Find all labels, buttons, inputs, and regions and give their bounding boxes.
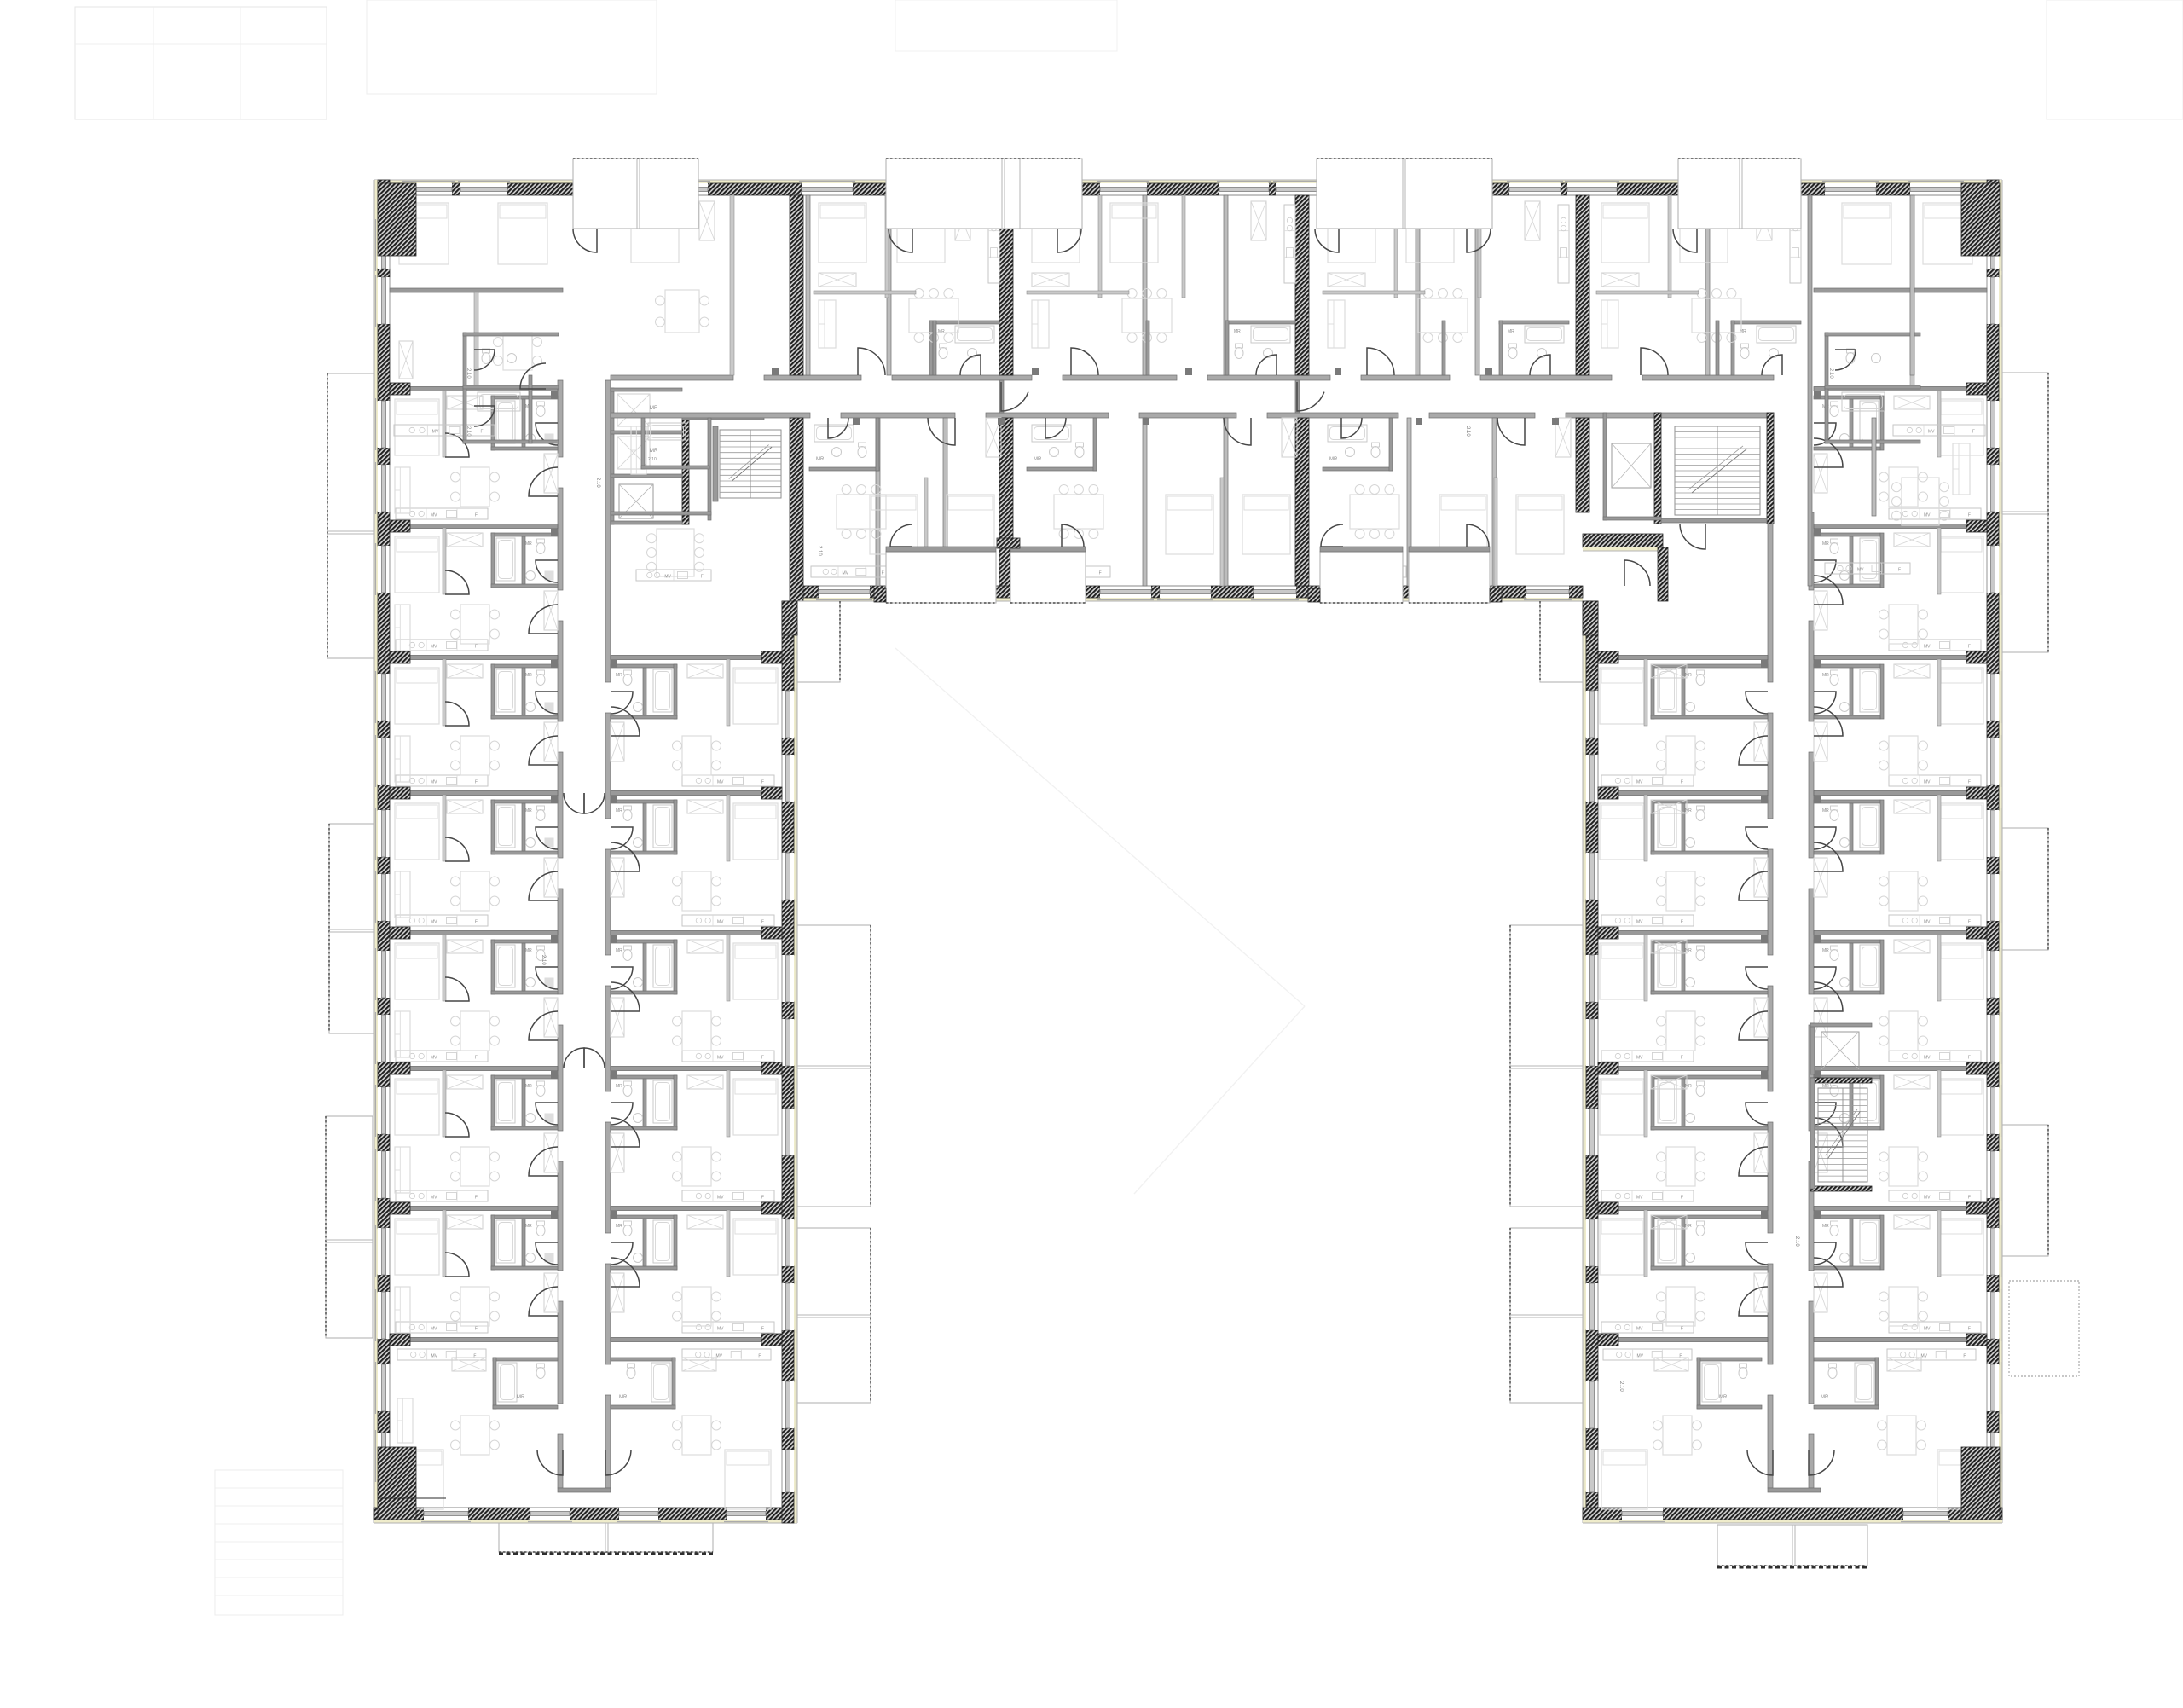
svg-text:MV: MV	[431, 920, 437, 925]
svg-text:MV: MV	[1928, 430, 1935, 435]
svg-text:F: F	[475, 1056, 478, 1061]
svg-text:MR: MR	[616, 948, 622, 953]
svg-text:MR: MR	[1822, 808, 1829, 813]
svg-text:F: F	[1968, 513, 1971, 518]
svg-text:MR: MR	[1508, 329, 1514, 334]
svg-text:F: F	[1968, 780, 1971, 785]
svg-text:MV: MV	[1636, 920, 1643, 925]
svg-text:MR: MR	[1719, 1395, 1728, 1400]
svg-text:MV: MV	[717, 1196, 724, 1201]
svg-text:MV: MV	[1924, 920, 1931, 925]
svg-text:F: F	[761, 1056, 764, 1061]
svg-text:F: F	[1681, 1327, 1683, 1332]
svg-text:MR: MR	[1329, 457, 1338, 462]
svg-text:F: F	[761, 1196, 764, 1201]
svg-text:MV: MV	[717, 1327, 724, 1332]
svg-text:MV: MV	[843, 571, 849, 576]
svg-text:MR: MR	[1234, 329, 1241, 334]
svg-text:F: F	[1968, 920, 1971, 925]
svg-text:MV: MV	[431, 1196, 437, 1201]
svg-text:MV: MV	[431, 645, 437, 650]
svg-text:F: F	[475, 780, 478, 785]
svg-text:MV: MV	[1924, 780, 1931, 785]
svg-text:MR: MR	[938, 329, 945, 334]
svg-text:MV: MV	[1921, 1354, 1928, 1359]
svg-text:MV: MV	[431, 1056, 437, 1061]
svg-text:MV: MV	[1636, 1056, 1643, 1061]
svg-text:F: F	[1681, 1196, 1683, 1201]
svg-text:F: F	[1972, 430, 1975, 435]
svg-text:MR: MR	[525, 1224, 532, 1229]
svg-text:MR: MR	[619, 1395, 628, 1400]
svg-text:MR: MR	[525, 808, 532, 813]
svg-text:F: F	[882, 571, 884, 576]
svg-text:2.10: 2.10	[1465, 426, 1470, 437]
svg-text:MR: MR	[525, 1084, 532, 1089]
svg-text:F: F	[1681, 780, 1683, 785]
svg-text:MV: MV	[1924, 645, 1931, 650]
svg-text:MV: MV	[431, 780, 437, 785]
svg-text:MR: MR	[1685, 948, 1692, 953]
svg-text:F: F	[1963, 1354, 1966, 1359]
svg-text:MV: MV	[1924, 513, 1931, 518]
svg-text:MV: MV	[664, 575, 671, 580]
svg-text:2.10: 2.10	[1794, 1236, 1799, 1247]
svg-text:MV: MV	[717, 780, 724, 785]
svg-text:F: F	[761, 1327, 764, 1332]
svg-text:F: F	[1681, 1056, 1683, 1061]
svg-text:MR: MR	[1685, 673, 1692, 678]
svg-text:MV: MV	[1857, 568, 1864, 573]
svg-text:MV: MV	[717, 920, 724, 925]
svg-text:MR: MR	[525, 541, 532, 547]
svg-text:2.10: 2.10	[541, 955, 546, 965]
svg-text:F: F	[473, 1354, 476, 1359]
svg-text:F: F	[475, 1327, 478, 1332]
svg-text:MR: MR	[1685, 808, 1692, 813]
svg-text:2.10: 2.10	[466, 368, 471, 379]
svg-text:MV: MV	[716, 1354, 723, 1359]
svg-text:MV: MV	[1636, 780, 1643, 785]
svg-text:F: F	[475, 513, 478, 518]
svg-text:MV: MV	[1636, 1327, 1643, 1332]
svg-text:MR: MR	[525, 673, 532, 678]
svg-text:MR: MR	[616, 673, 622, 678]
svg-text:2.10: 2.10	[817, 546, 822, 556]
svg-text:MR: MR	[616, 1084, 622, 1089]
svg-text:2.10: 2.10	[648, 457, 657, 462]
svg-text:MR: MR	[650, 449, 658, 454]
svg-text:2.10: 2.10	[466, 426, 471, 437]
svg-text:MV: MV	[431, 513, 437, 518]
svg-text:MR: MR	[1822, 541, 1829, 547]
svg-text:F: F	[475, 920, 478, 925]
svg-text:F: F	[481, 430, 484, 435]
svg-text:MR: MR	[1034, 457, 1042, 462]
svg-text:F: F	[758, 1354, 761, 1359]
svg-text:MV: MV	[1637, 1354, 1644, 1359]
svg-text:MR: MR	[1685, 1084, 1692, 1089]
svg-text:MR: MR	[517, 1395, 525, 1400]
svg-text:F: F	[761, 780, 764, 785]
svg-text:MV: MV	[1924, 1196, 1931, 1201]
svg-text:MV: MV	[432, 430, 439, 435]
svg-text:MR: MR	[1740, 329, 1746, 334]
svg-text:F: F	[1679, 1354, 1682, 1359]
svg-text:F: F	[701, 575, 704, 580]
svg-text:MR: MR	[1822, 1224, 1829, 1229]
svg-text:F: F	[1898, 568, 1901, 573]
svg-text:F: F	[1968, 1196, 1971, 1201]
svg-text:MV: MV	[1924, 1327, 1931, 1332]
svg-text:MR: MR	[1821, 1395, 1829, 1400]
svg-text:MR: MR	[616, 1224, 622, 1229]
svg-text:2.10: 2.10	[1828, 368, 1833, 379]
svg-text:MR: MR	[1822, 948, 1829, 953]
svg-text:F: F	[1681, 920, 1683, 925]
svg-text:F: F	[475, 1196, 478, 1201]
svg-text:F: F	[475, 645, 478, 650]
svg-text:F: F	[1968, 1056, 1971, 1061]
svg-text:MR: MR	[525, 948, 532, 953]
svg-text:MR: MR	[1685, 1224, 1692, 1229]
svg-text:MV: MV	[717, 1056, 724, 1061]
svg-text:MV: MV	[431, 1327, 437, 1332]
svg-text:MR: MR	[1822, 673, 1829, 678]
svg-text:F: F	[1968, 645, 1971, 650]
svg-text:F: F	[1099, 571, 1102, 576]
svg-text:MR: MR	[616, 808, 622, 813]
svg-text:MV: MV	[1924, 1056, 1931, 1061]
svg-text:2.10: 2.10	[595, 478, 600, 488]
svg-text:F: F	[761, 920, 764, 925]
svg-text:2.10: 2.10	[1618, 1381, 1624, 1392]
svg-text:MV: MV	[1636, 1196, 1643, 1201]
svg-text:MR: MR	[650, 406, 658, 411]
svg-text:MV: MV	[431, 1354, 438, 1359]
svg-text:MR: MR	[816, 457, 825, 462]
svg-text:F: F	[1968, 1327, 1971, 1332]
